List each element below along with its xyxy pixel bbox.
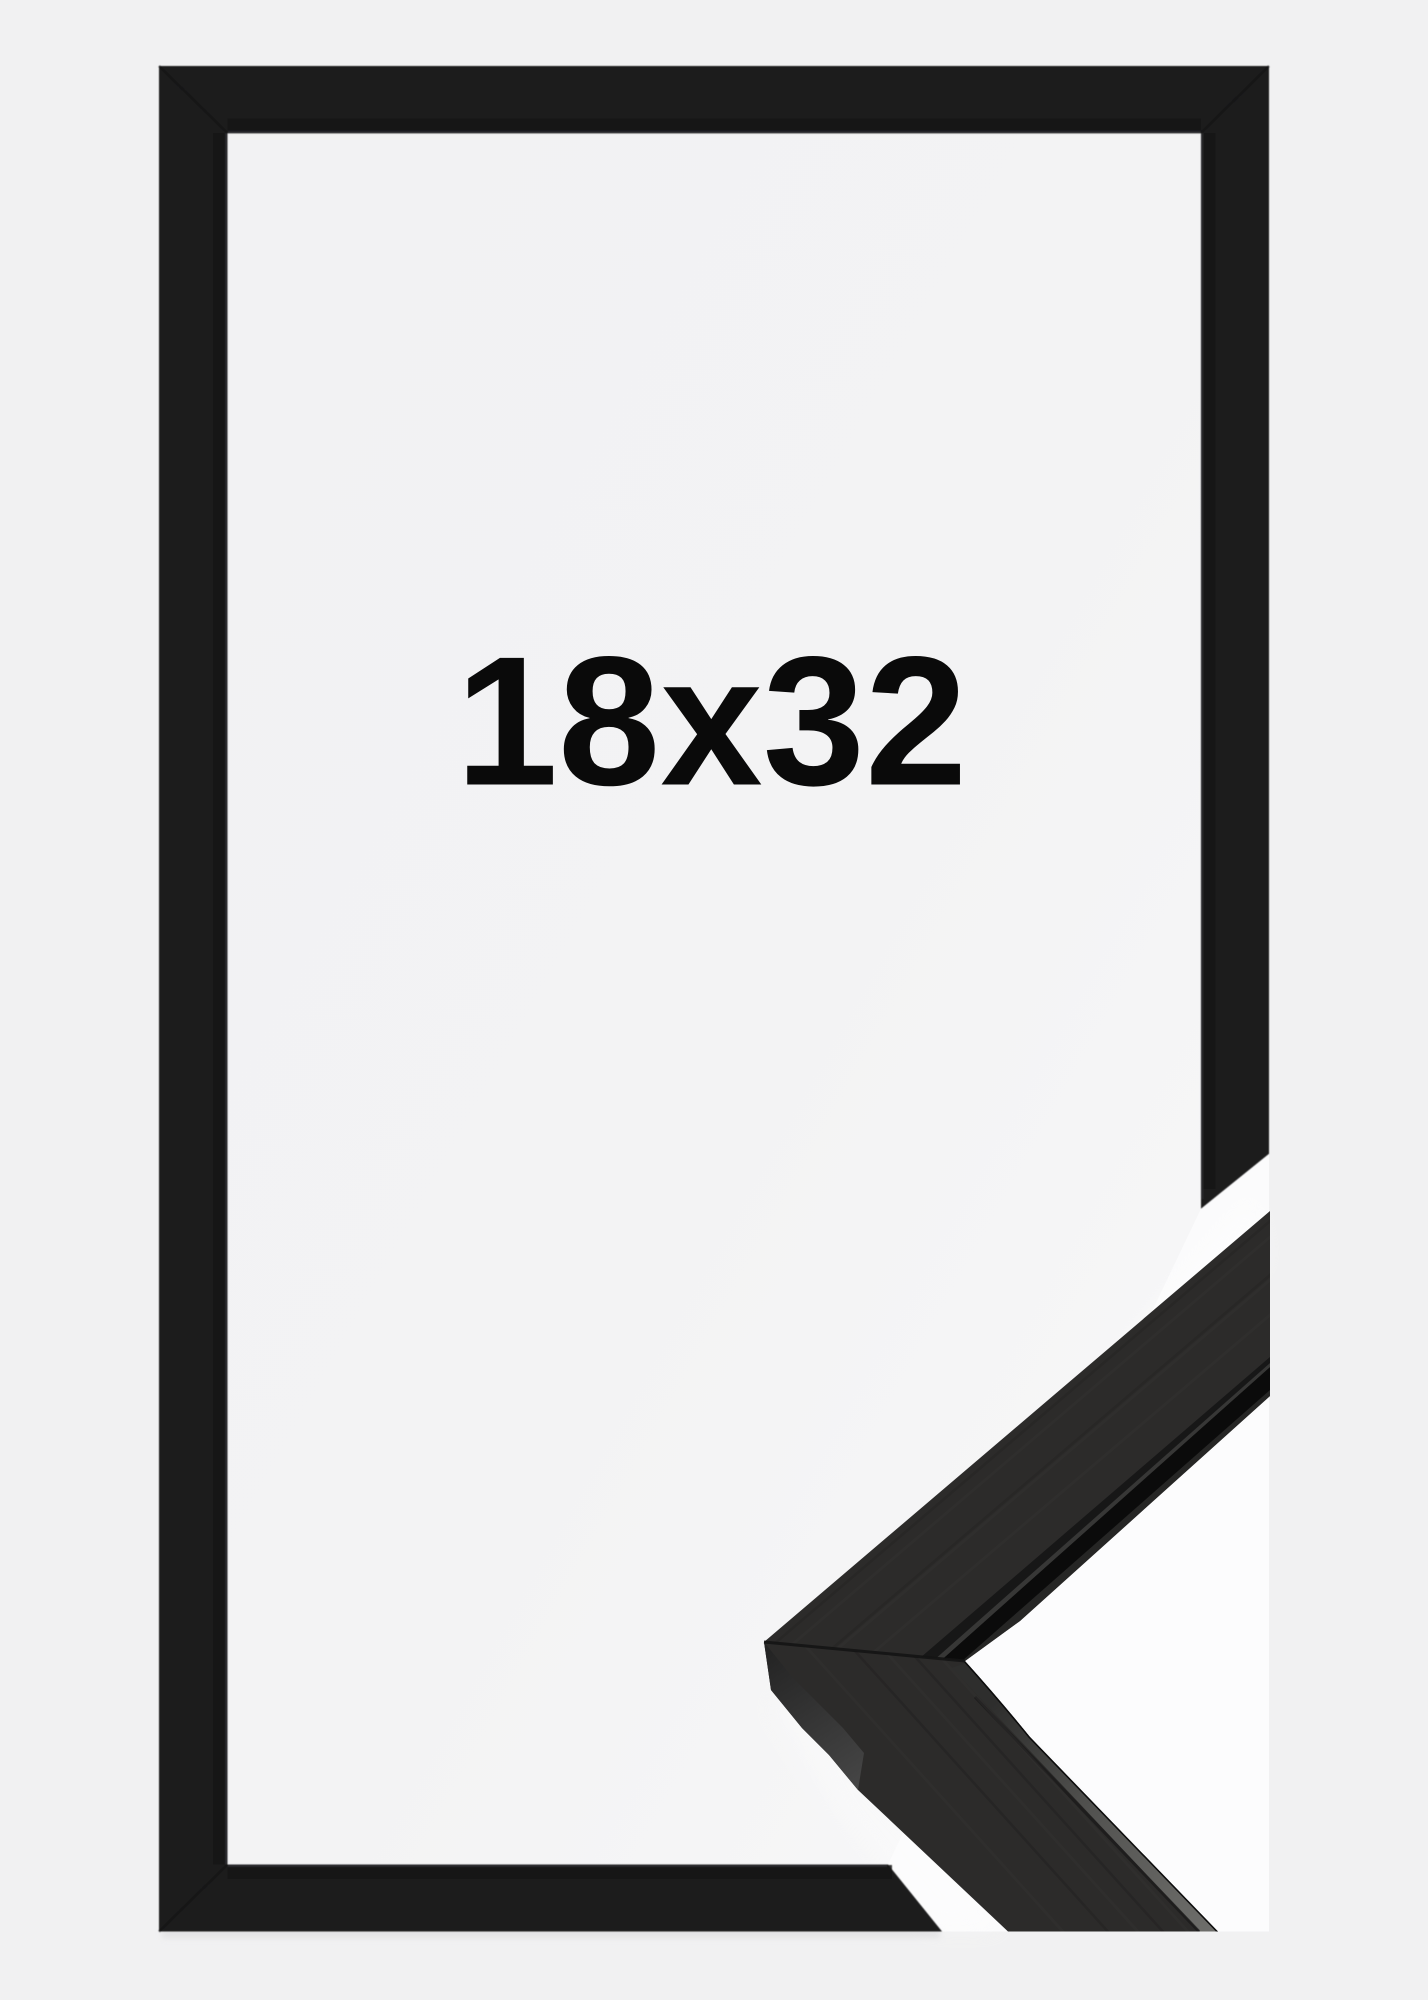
svg-text:18x32: 18x32 xyxy=(456,618,968,824)
